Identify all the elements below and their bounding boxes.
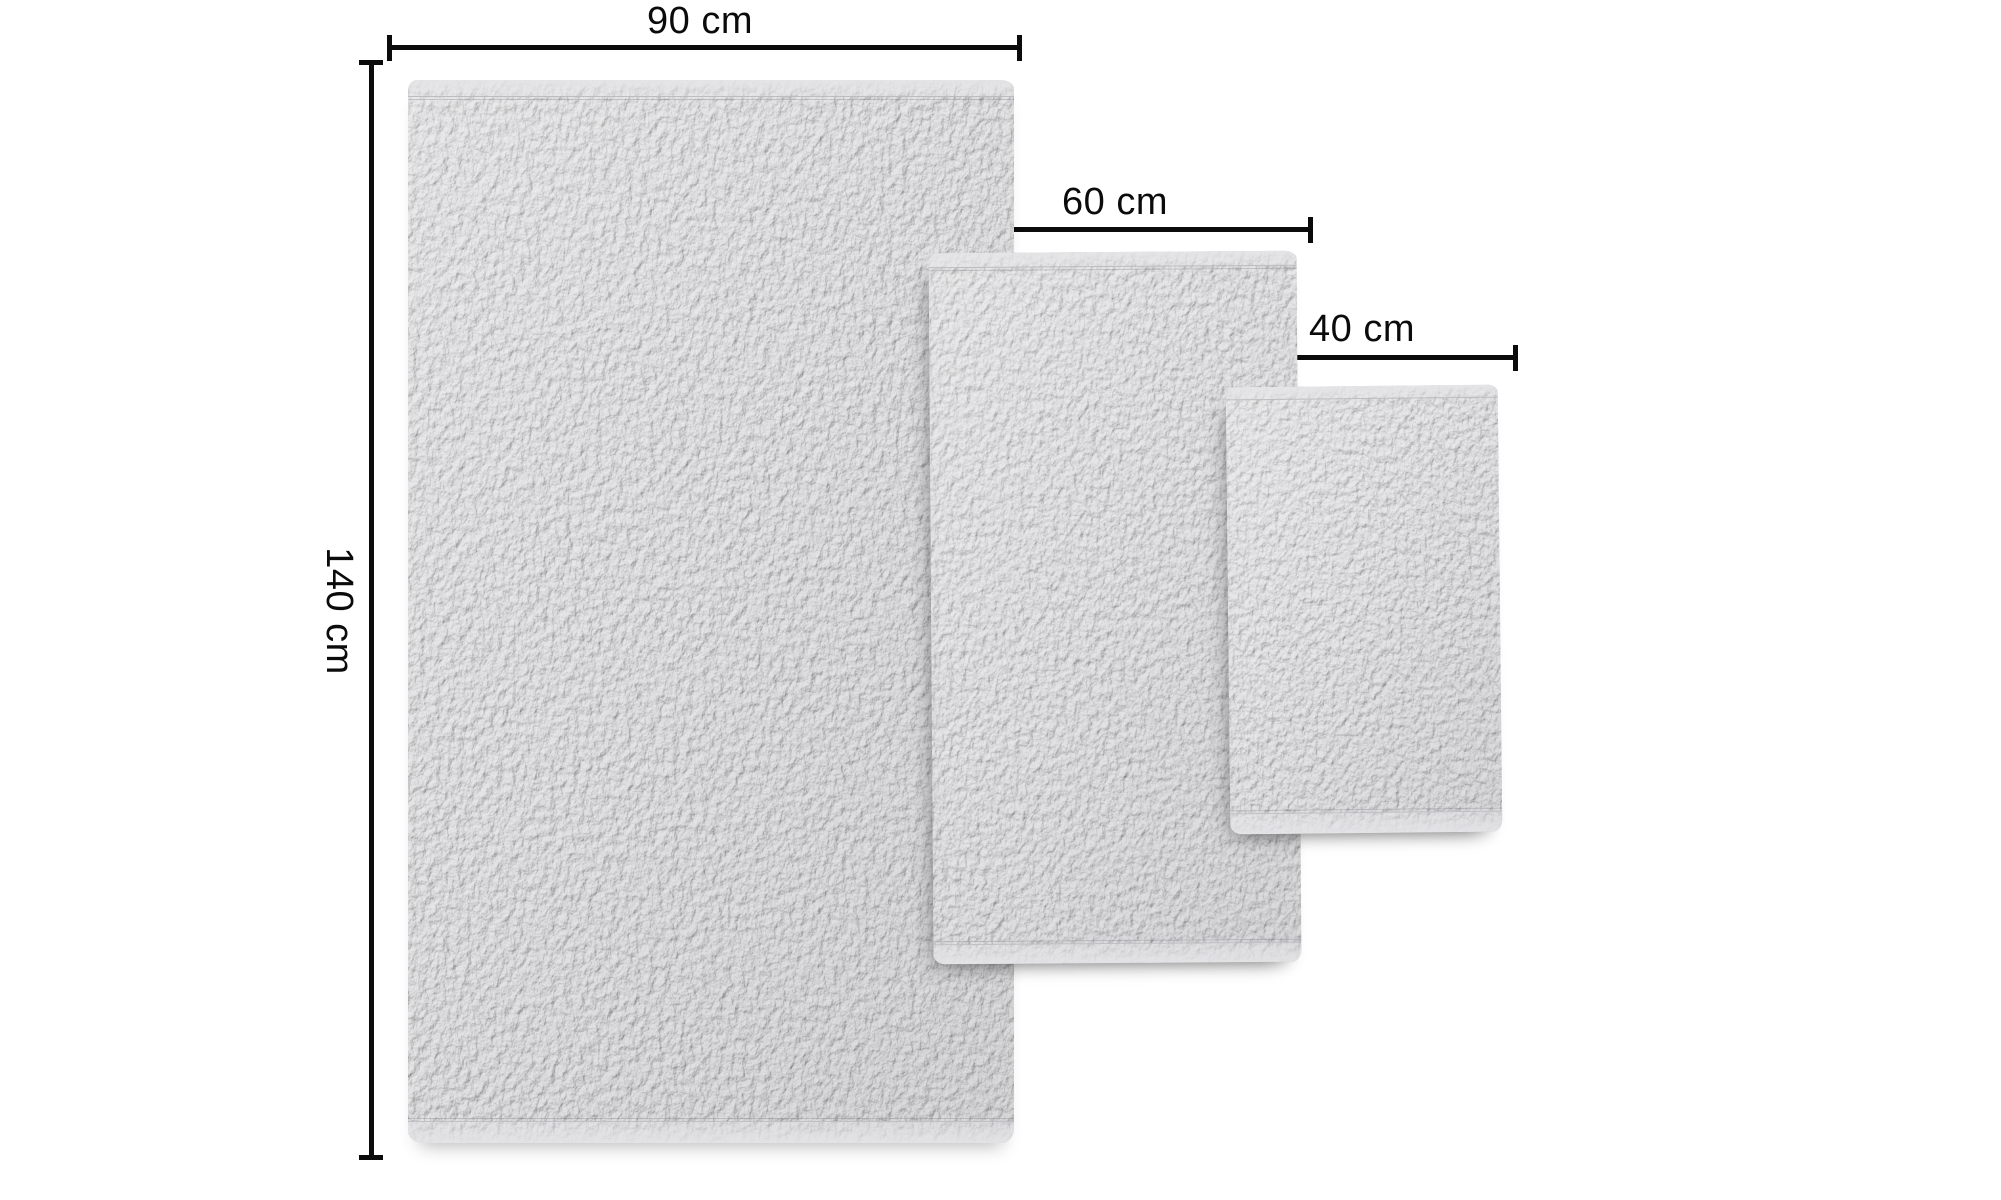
- towel-bottom-hem: [408, 1121, 1014, 1143]
- tick-end: [359, 1155, 383, 1160]
- towel-size-diagram: 90 cm 140 cm 60 cm 90 cm 40 cm: [0, 0, 2001, 1200]
- tick-end: [1513, 345, 1518, 371]
- dimension-label: 60 cm: [1062, 182, 1168, 222]
- dimension-label: 40 cm: [1309, 309, 1415, 349]
- bath-towel-image: [408, 80, 1014, 1143]
- dimension-line: [369, 60, 374, 1160]
- hem-stitch-line: [408, 99, 1014, 100]
- dimension-label: 140 cm: [319, 547, 359, 675]
- tick-end: [1308, 217, 1313, 243]
- tick-start: [359, 60, 383, 65]
- tick-start: [387, 35, 392, 61]
- guest-towel-image: [1226, 385, 1503, 835]
- towel-bottom-hem: [1230, 811, 1502, 835]
- towel-top-hem: [929, 251, 1297, 269]
- towel-shading: [408, 80, 1014, 1143]
- tick-end: [1017, 35, 1022, 61]
- dimension-line: [387, 45, 1022, 50]
- hem-stitch-line: [408, 1118, 1014, 1119]
- towel-top-hem: [408, 80, 1014, 97]
- towel-shading: [1226, 385, 1503, 835]
- towel-bottom-hem: [933, 942, 1301, 965]
- dimension-label: 90 cm: [647, 1, 753, 41]
